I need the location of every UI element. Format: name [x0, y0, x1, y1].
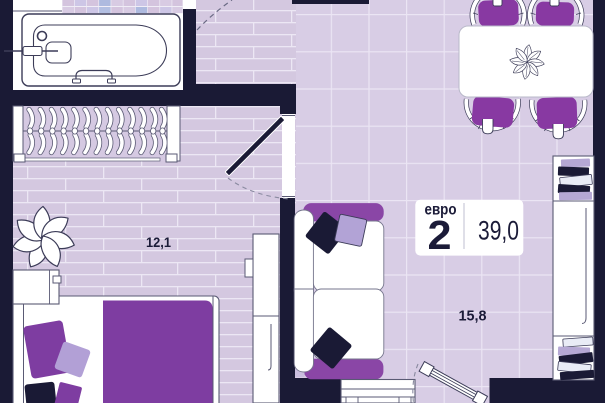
svg-text:39,0: 39,0 — [478, 216, 519, 246]
svg-text:2: 2 — [428, 212, 452, 258]
svg-text:15,8: 15,8 — [459, 308, 487, 325]
svg-text:12,1: 12,1 — [146, 234, 171, 250]
